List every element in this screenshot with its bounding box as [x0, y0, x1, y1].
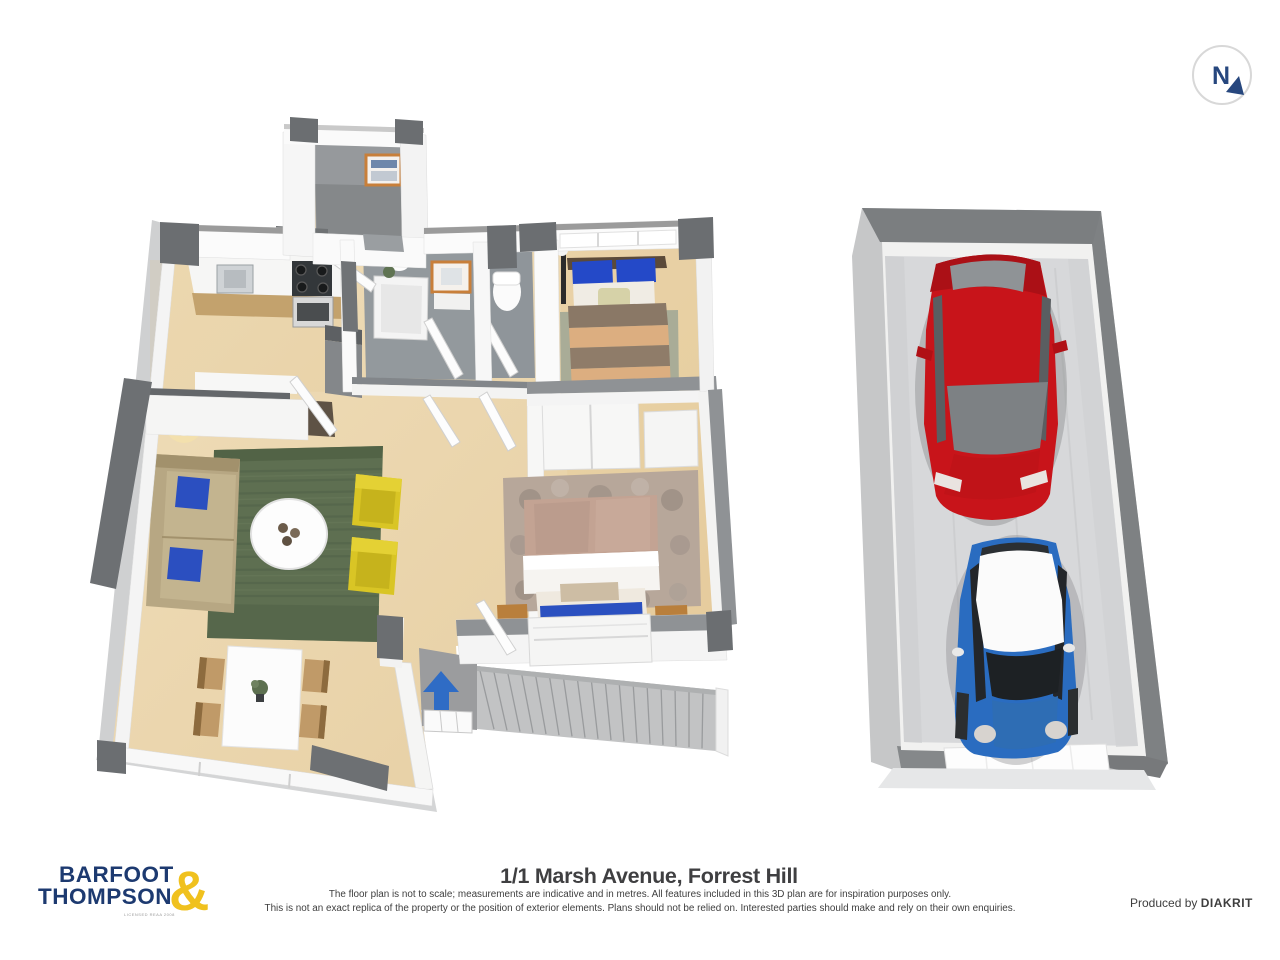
svg-text:N: N: [1212, 62, 1230, 90]
